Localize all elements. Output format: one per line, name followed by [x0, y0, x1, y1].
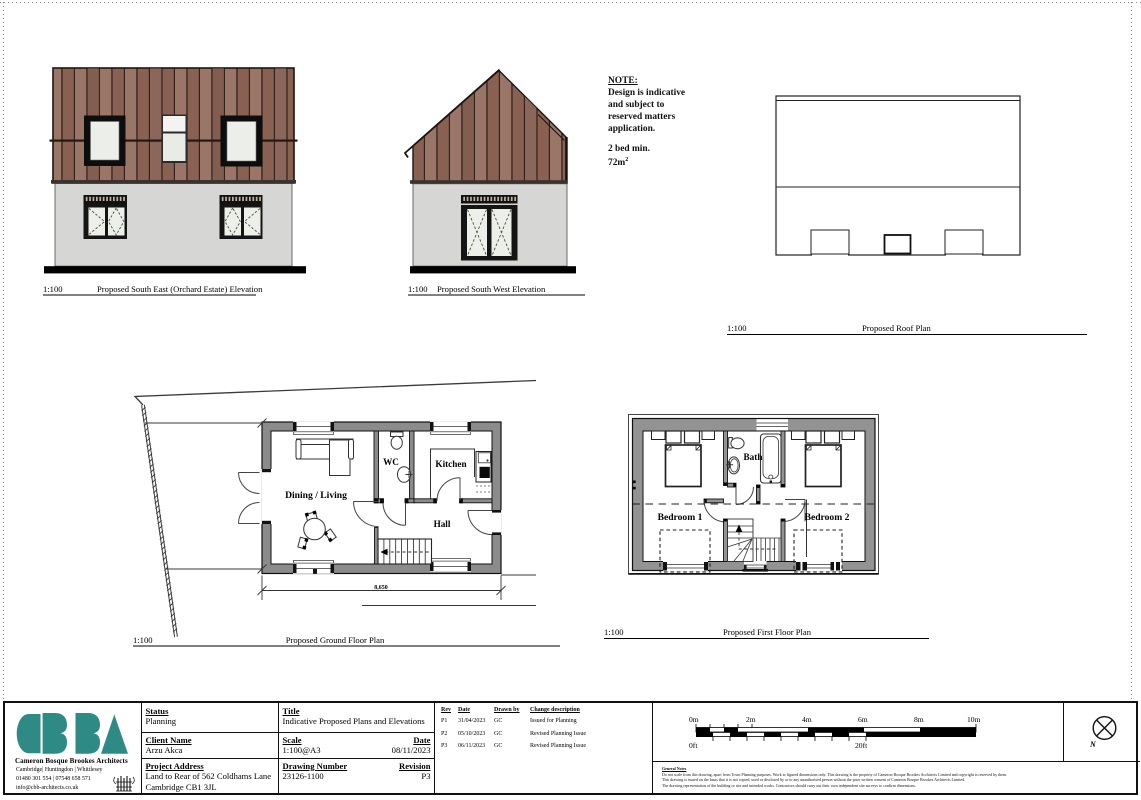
svg-text:1:100: 1:100: [604, 627, 624, 637]
svg-text:1:100: 1:100: [133, 635, 153, 645]
svg-text:Proposed South East (Orchard E: Proposed South East (Orchard Estate) Ele…: [97, 284, 263, 294]
svg-text:2m: 2m: [746, 715, 756, 724]
svg-text:8m: 8m: [914, 715, 924, 724]
svg-text:N: N: [1089, 740, 1097, 749]
svg-text:6m: 6m: [858, 715, 868, 724]
svg-text:1:100: 1:100: [727, 323, 747, 333]
svg-text:0m: 0m: [689, 715, 699, 724]
svg-text:Proposed First Floor Plan: Proposed First Floor Plan: [723, 627, 812, 637]
svg-text:1:100: 1:100: [408, 284, 428, 294]
svg-text:Bedroom 1: Bedroom 1: [658, 512, 703, 523]
svg-text:WC: WC: [383, 457, 399, 467]
svg-text:8,650: 8,650: [374, 585, 388, 591]
svg-text:Proposed Ground Floor Plan: Proposed Ground Floor Plan: [286, 635, 385, 645]
svg-text:Bath: Bath: [744, 452, 763, 462]
svg-text:1:100: 1:100: [43, 284, 63, 294]
svg-text:Proposed Roof Plan: Proposed Roof Plan: [862, 323, 931, 333]
svg-text:20ft: 20ft: [855, 741, 868, 750]
svg-text:0ft: 0ft: [689, 741, 698, 750]
svg-text:Hall: Hall: [434, 519, 451, 529]
svg-text:Bedroom 2: Bedroom 2: [805, 512, 850, 523]
svg-text:Proposed South West Elevation: Proposed South West Elevation: [437, 284, 546, 294]
svg-text:Dining / Living: Dining / Living: [285, 490, 347, 501]
svg-text:Kitchen: Kitchen: [435, 459, 466, 469]
svg-text:10m: 10m: [967, 715, 981, 724]
svg-text:4m: 4m: [802, 715, 812, 724]
